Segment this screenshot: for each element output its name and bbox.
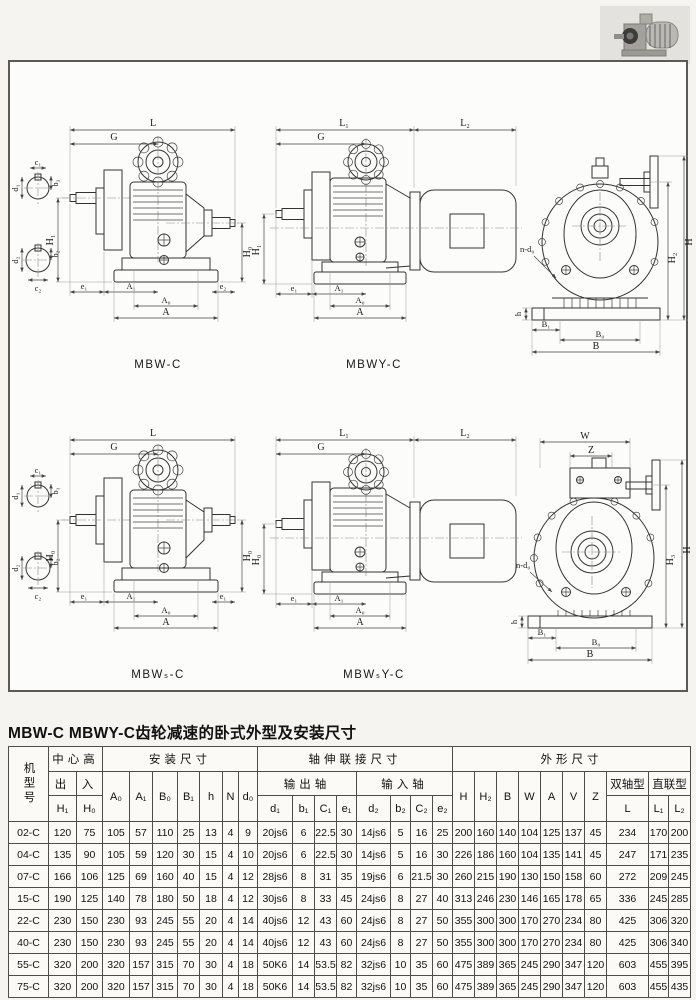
dim-label: G xyxy=(110,132,117,143)
dim-cell: 16 xyxy=(411,844,433,866)
table-row: 40-C23015023093245552041440js612436024js… xyxy=(9,932,691,954)
dim-cell: 18 xyxy=(239,976,258,998)
dim-cell: 32js6 xyxy=(357,976,391,998)
dim-cell: 125 xyxy=(77,888,103,910)
col-B0: B₀ xyxy=(153,772,178,822)
dim-cell: 8 xyxy=(391,932,411,954)
model-cell: 22-C xyxy=(9,910,49,932)
dim-cell: 80 xyxy=(585,932,607,954)
dim-cell: 65 xyxy=(585,888,607,910)
dim-cell: 104 xyxy=(519,822,541,844)
dim-cell: 16 xyxy=(411,822,433,844)
dim-cell: 50K6 xyxy=(258,976,293,998)
dim-cell: 455 xyxy=(649,954,669,976)
dim-cell: 30 xyxy=(200,954,223,976)
col-Z: Z xyxy=(585,772,607,822)
dim-cell: 14 xyxy=(239,932,258,954)
dim-label: c₁ xyxy=(35,465,42,475)
col-B: B xyxy=(497,772,519,822)
col-b1: b₁ xyxy=(293,796,315,822)
dim-cell: 320 xyxy=(103,954,130,976)
dim-cell: 33 xyxy=(315,888,337,910)
dim-cell: 170 xyxy=(649,822,669,844)
dim-cell: 18 xyxy=(200,888,223,910)
dim-cell: 60 xyxy=(433,954,453,976)
dim-cell: 135 xyxy=(49,844,77,866)
dim-cell: 272 xyxy=(607,866,649,888)
dim-cell: 10 xyxy=(391,976,411,998)
dim-label: L₂ xyxy=(460,428,470,439)
dim-cell: 178 xyxy=(563,888,585,910)
dim-cell: 300 xyxy=(475,932,497,954)
col-H: H xyxy=(453,772,475,822)
dim-label: L xyxy=(150,428,156,439)
dim-cell: 475 xyxy=(453,954,475,976)
model-cell: 75-C xyxy=(9,976,49,998)
table-header: 机型号 中心高 安装尺寸 轴伸联接尺寸 外形尺寸 出 入 A₀ A₁ B₀ B₁… xyxy=(9,747,691,822)
dim-cell: 160 xyxy=(153,866,178,888)
dim-cell: 226 xyxy=(453,844,475,866)
dim-cell: 140 xyxy=(497,822,519,844)
dim-cell: 160 xyxy=(475,822,497,844)
dim-cell: 30 xyxy=(337,822,357,844)
dim-cell: 395 xyxy=(669,954,691,976)
dim-cell: 235 xyxy=(669,844,691,866)
dim-cell: 24js6 xyxy=(357,932,391,954)
dim-label: n-d₀ xyxy=(520,244,534,254)
dim-cell: 13 xyxy=(200,822,223,844)
dim-cell: 28js6 xyxy=(258,866,293,888)
dim-cell: 4 xyxy=(223,976,239,998)
dim-label: H₁ xyxy=(45,235,56,246)
dim-cell: 60 xyxy=(337,910,357,932)
dim-cell: 200 xyxy=(77,954,103,976)
dim-cell: 389 xyxy=(475,954,497,976)
reducer-motor-body xyxy=(270,138,522,284)
dim-cell: 137 xyxy=(563,822,585,844)
dim-cell: 27 xyxy=(411,910,433,932)
dim-cell: 4 xyxy=(223,954,239,976)
dim-label: L₁ xyxy=(339,118,349,129)
dim-cell: 355 xyxy=(453,932,475,954)
dim-cell: 30 xyxy=(200,976,223,998)
dim-cell: 35 xyxy=(411,954,433,976)
dim-cell: 4 xyxy=(223,866,239,888)
gear-motor-photo-art xyxy=(600,6,690,64)
table-body: 02-C120751055711025134920js6622.53014js6… xyxy=(9,822,691,998)
dim-cell: 180 xyxy=(153,888,178,910)
dim-cell: 234 xyxy=(563,910,585,932)
dim-cell: 234 xyxy=(607,822,649,844)
model-cell: 15-C xyxy=(9,888,49,910)
dim-cell: 603 xyxy=(607,976,649,998)
dim-label: H xyxy=(684,238,695,245)
dim-label: G xyxy=(110,442,117,453)
dim-label: H₁ xyxy=(251,245,262,256)
col-in: 入 xyxy=(77,772,103,796)
dim-cell: 365 xyxy=(497,954,519,976)
dim-label: e₁ xyxy=(220,591,227,601)
dim-cell: 425 xyxy=(607,910,649,932)
dim-cell: 120 xyxy=(585,976,607,998)
dim-cell: 15 xyxy=(200,866,223,888)
col-A: A xyxy=(541,772,563,822)
col-C1: C₁ xyxy=(315,796,337,822)
dim-label: A₀ xyxy=(161,295,170,305)
dim-cell: 120 xyxy=(49,822,77,844)
dim-cell: 22.5 xyxy=(315,844,337,866)
dim-cell: 75 xyxy=(77,822,103,844)
dim-cell: 245 xyxy=(669,866,691,888)
dim-cell: 6 xyxy=(391,866,411,888)
table-row: 15-C19012514078180501841230js68334524js6… xyxy=(9,888,691,910)
dim-cell: 190 xyxy=(49,888,77,910)
col-h: h xyxy=(200,772,223,822)
dim-label: B xyxy=(587,649,594,660)
dim-cell: 12 xyxy=(293,932,315,954)
dim-cell: 45 xyxy=(585,822,607,844)
dim-cell: 30js6 xyxy=(258,888,293,910)
dim-cell: 6 xyxy=(293,844,315,866)
col-N: N xyxy=(223,772,239,822)
dim-cell: 125 xyxy=(541,822,563,844)
dim-cell: 110 xyxy=(153,822,178,844)
dim-cell: 22.5 xyxy=(315,822,337,844)
dim-cell: 20js6 xyxy=(258,822,293,844)
col-C2: C₂ xyxy=(411,796,433,822)
dim-cell: 200 xyxy=(453,822,475,844)
dim-cell: 25 xyxy=(433,822,453,844)
col-d0: d₀ xyxy=(239,772,258,822)
dim-label: b₂ xyxy=(50,250,60,257)
dim-cell: 4 xyxy=(223,932,239,954)
model-cell: 55-C xyxy=(9,954,49,976)
dim-cell: 14 xyxy=(293,954,315,976)
dim-cell: 60 xyxy=(433,976,453,998)
dim-cell: 146 xyxy=(519,888,541,910)
group-output-shaft: 输出轴 xyxy=(258,772,357,796)
dim-label: d₁ xyxy=(10,184,20,191)
col-d1: d₁ xyxy=(258,796,293,822)
dimension-table: 机型号 中心高 安装尺寸 轴伸联接尺寸 外形尺寸 出 入 A₀ A₁ B₀ B₁… xyxy=(8,746,691,998)
dim-cell: 158 xyxy=(563,866,585,888)
dim-cell: 21.5 xyxy=(411,866,433,888)
dim-cell: 245 xyxy=(153,910,178,932)
dim-cell: 215 xyxy=(475,866,497,888)
dim-cell: 285 xyxy=(669,888,691,910)
dim-label: b₁ xyxy=(50,487,60,494)
dim-label: B₁ xyxy=(538,627,547,637)
dim-cell: 6 xyxy=(293,822,315,844)
dim-label: B₀ xyxy=(596,329,605,339)
dim-cell: 32js6 xyxy=(357,954,391,976)
group-center-height: 中心高 xyxy=(49,747,103,772)
dim-cell: 14 xyxy=(293,976,315,998)
table-row: 07-C16610612569160401541228js68313519js6… xyxy=(9,866,691,888)
dim-cell: 475 xyxy=(453,976,475,998)
dimension-lines: L G H₀ H₀ e₁ A₁ e₁ A₀ xyxy=(45,428,253,632)
dim-cell: 306 xyxy=(649,932,669,954)
dim-cell: 40js6 xyxy=(258,932,293,954)
dim-cell: 30 xyxy=(433,866,453,888)
dim-cell: 336 xyxy=(607,888,649,910)
col-L2: L₂ xyxy=(669,796,691,822)
dim-cell: 300 xyxy=(475,910,497,932)
housing-end-view xyxy=(528,458,660,628)
dim-cell: 40 xyxy=(178,866,200,888)
dim-label: H₂ xyxy=(667,253,678,264)
dim-cell: 435 xyxy=(669,976,691,998)
col-H1: H₁ xyxy=(49,796,77,822)
dim-cell: 315 xyxy=(153,976,178,998)
input-shaft-section-detail: b₂ d₂ c₂ xyxy=(10,243,60,293)
dim-cell: 166 xyxy=(49,866,77,888)
dim-cell: 234 xyxy=(563,932,585,954)
dim-label: e₁ xyxy=(81,281,88,291)
dim-cell: 120 xyxy=(153,844,178,866)
dimension-lines: H H₂ n-d₀ h B₁ B₀ B xyxy=(513,156,695,356)
col-H0: H₀ xyxy=(77,796,103,822)
col-V: V xyxy=(563,772,585,822)
group-outline: 外形尺寸 xyxy=(453,747,691,772)
dim-cell: 104 xyxy=(519,844,541,866)
drawing-caption: MBWₛ-C xyxy=(131,669,185,681)
dim-cell: 389 xyxy=(475,976,497,998)
dim-cell: 270 xyxy=(541,932,563,954)
dim-label: H₀ xyxy=(45,550,56,561)
group-input-shaft: 输入轴 xyxy=(357,772,453,796)
dim-cell: 8 xyxy=(293,866,315,888)
dim-label: c₂ xyxy=(35,591,42,601)
dim-label: G xyxy=(317,132,324,143)
dim-label: A₁ xyxy=(334,593,343,603)
dim-label: A₁ xyxy=(334,283,343,293)
dim-cell: 25 xyxy=(178,822,200,844)
dim-label: B₀ xyxy=(592,637,601,647)
dim-cell: 120 xyxy=(585,954,607,976)
col-L: L xyxy=(607,796,649,822)
dim-label: L₁ xyxy=(339,428,349,439)
dim-cell: 20 xyxy=(200,932,223,954)
dim-cell: 306 xyxy=(649,910,669,932)
dim-cell: 4 xyxy=(223,844,239,866)
output-shaft-section-detail: c₁ b₁ d₁ xyxy=(10,465,60,512)
dim-cell: 8 xyxy=(391,910,411,932)
dim-cell: 5 xyxy=(391,844,411,866)
dim-cell: 4 xyxy=(223,888,239,910)
col-e1: e₁ xyxy=(337,796,357,822)
dim-cell: 125 xyxy=(103,866,130,888)
group-direct-coupled: 直联型 xyxy=(649,772,691,796)
group-double-shaft: 双轴型 xyxy=(607,772,649,796)
dim-cell: 170 xyxy=(519,932,541,954)
dim-cell: 247 xyxy=(607,844,649,866)
dim-label: A xyxy=(356,617,364,628)
dim-cell: 106 xyxy=(77,866,103,888)
dim-label: n-d₀ xyxy=(516,560,530,570)
dim-cell: 260 xyxy=(453,866,475,888)
model-cell: 40-C xyxy=(9,932,49,954)
dim-cell: 50 xyxy=(433,932,453,954)
dim-cell: 60 xyxy=(337,932,357,954)
dim-cell: 12 xyxy=(293,910,315,932)
dim-label: A₀ xyxy=(355,605,364,615)
dim-label: A₀ xyxy=(161,605,170,615)
model-cell: 02-C xyxy=(9,822,49,844)
dim-cell: 135 xyxy=(541,844,563,866)
dim-label: e₁ xyxy=(291,593,298,603)
dim-label: H₃ xyxy=(665,555,676,566)
reducer-body xyxy=(62,136,242,282)
dim-cell: 230 xyxy=(497,888,519,910)
dim-cell: 160 xyxy=(497,844,519,866)
dim-label: G xyxy=(317,442,324,453)
dim-cell: 14js6 xyxy=(357,844,391,866)
dim-cell: 365 xyxy=(497,976,519,998)
model-cell: 04-C xyxy=(9,844,49,866)
dim-cell: 60 xyxy=(585,866,607,888)
dim-cell: 18 xyxy=(239,954,258,976)
dim-cell: 53.5 xyxy=(315,976,337,998)
dim-cell: 320 xyxy=(49,954,77,976)
dim-cell: 347 xyxy=(563,976,585,998)
dim-label: e₁ xyxy=(291,283,298,293)
dim-cell: 4 xyxy=(223,822,239,844)
output-shaft-section-detail: c₁ b₁ d₁ xyxy=(10,157,60,204)
dim-label: A xyxy=(162,617,170,628)
dim-label: A xyxy=(162,307,170,318)
dim-cell: 59 xyxy=(130,844,153,866)
dim-cell: 30 xyxy=(178,844,200,866)
dim-cell: 35 xyxy=(411,976,433,998)
dim-cell: 320 xyxy=(103,976,130,998)
dim-label: d₂ xyxy=(10,256,20,263)
dim-cell: 245 xyxy=(519,976,541,998)
dim-cell: 27 xyxy=(411,932,433,954)
table-row: 04-C1359010559120301541020js6622.53014js… xyxy=(9,844,691,866)
dim-cell: 140 xyxy=(103,888,130,910)
dim-label: d₁ xyxy=(10,492,20,499)
col-B1: B₁ xyxy=(178,772,200,822)
dim-cell: 105 xyxy=(103,822,130,844)
dim-cell: 290 xyxy=(541,954,563,976)
reducer-motor-body xyxy=(270,448,522,594)
dim-cell: 245 xyxy=(519,954,541,976)
dim-label: e₂ xyxy=(220,281,227,291)
dim-cell: 43 xyxy=(315,910,337,932)
mbwy-c-drawing: L₁ L₂ G H₁ e₁ A₁ A₀ A MBWY-C xyxy=(254,110,526,383)
dim-cell: 300 xyxy=(497,932,519,954)
dim-cell: 246 xyxy=(475,888,497,910)
dim-cell: 130 xyxy=(519,866,541,888)
dim-cell: 157 xyxy=(130,954,153,976)
dim-cell: 200 xyxy=(77,976,103,998)
dim-cell: 425 xyxy=(607,932,649,954)
dim-cell: 27 xyxy=(411,888,433,910)
drawing-caption: MBWₛY-C xyxy=(343,669,405,681)
col-L1: L₁ xyxy=(649,796,669,822)
table-row: 55-C320200320157315703041850K61453.58232… xyxy=(9,954,691,976)
dim-cell: 14js6 xyxy=(357,822,391,844)
dim-cell: 603 xyxy=(607,954,649,976)
dim-cell: 40 xyxy=(433,888,453,910)
dim-label: Z xyxy=(588,445,594,456)
dim-cell: 186 xyxy=(475,844,497,866)
dim-label: A₀ xyxy=(355,295,364,305)
dim-cell: 170 xyxy=(519,910,541,932)
dim-cell: 340 xyxy=(669,932,691,954)
dim-cell: 245 xyxy=(649,888,669,910)
dim-cell: 50 xyxy=(433,910,453,932)
col-A0: A₀ xyxy=(103,772,130,822)
dim-cell: 15 xyxy=(200,844,223,866)
dim-cell: 320 xyxy=(669,910,691,932)
dim-cell: 270 xyxy=(541,910,563,932)
dim-label: c₁ xyxy=(35,157,42,167)
col-model: 机型号 xyxy=(9,747,49,822)
group-mounting: 安装尺寸 xyxy=(103,747,258,772)
dim-cell: 347 xyxy=(563,954,585,976)
reducer-body xyxy=(62,444,242,592)
dim-cell: 20 xyxy=(200,910,223,932)
dim-cell: 45 xyxy=(337,888,357,910)
dim-cell: 150 xyxy=(541,866,563,888)
dim-label: L xyxy=(150,118,156,129)
dim-cell: 53.5 xyxy=(315,954,337,976)
dim-cell: 5 xyxy=(391,822,411,844)
dim-cell: 40js6 xyxy=(258,910,293,932)
dim-cell: 50K6 xyxy=(258,954,293,976)
dim-cell: 24js6 xyxy=(357,888,391,910)
dim-cell: 82 xyxy=(337,954,357,976)
dim-label: H₀ xyxy=(251,554,262,565)
dim-cell: 8 xyxy=(391,888,411,910)
dim-cell: 80 xyxy=(585,910,607,932)
dim-cell: 35 xyxy=(337,866,357,888)
mbwsy-c-drawing: L₁ L₂ G H₀ e₁ A₁ A₀ A MBWₛY-C xyxy=(254,420,526,693)
dim-label: B xyxy=(593,341,600,352)
dim-cell: 93 xyxy=(130,932,153,954)
col-H2: H₂ xyxy=(475,772,497,822)
dim-cell: 4 xyxy=(223,910,239,932)
dim-cell: 290 xyxy=(541,976,563,998)
page-title: MBW-C MBWY-C齿轮减速的卧式外型及安装尺寸 xyxy=(8,721,356,743)
dim-label: H xyxy=(682,546,693,553)
end-view-bottom-drawing: W Z H H₃ n-d₀ h B₁ B₀ xyxy=(512,430,696,693)
dim-label: b₁ xyxy=(50,179,60,186)
dim-label: e₁ xyxy=(81,591,88,601)
col-W: W xyxy=(519,772,541,822)
catalog-page: { "title": "MBW-C MBWY-C齿轮减速的卧式外型及安装尺寸",… xyxy=(0,0,696,1000)
dim-cell: 20js6 xyxy=(258,844,293,866)
housing-end-view xyxy=(532,156,660,320)
dim-cell: 230 xyxy=(103,932,130,954)
dim-cell: 355 xyxy=(453,910,475,932)
dim-cell: 245 xyxy=(153,932,178,954)
dim-cell: 200 xyxy=(669,822,691,844)
mbws-c-drawing: c₁ b₁ d₁ b₂ d₂ c₂ xyxy=(16,420,252,693)
dim-cell: 190 xyxy=(497,866,519,888)
dim-label: B₁ xyxy=(542,319,551,329)
col-A1: A₁ xyxy=(130,772,153,822)
table-row: 75-C320200320157315703041850K61453.58232… xyxy=(9,976,691,998)
dimension-lines: W Z H H₃ n-d₀ h B₁ B₀ xyxy=(509,431,693,664)
col-e2: e₂ xyxy=(433,796,453,822)
dim-cell: 30 xyxy=(433,844,453,866)
model-cell: 07-C xyxy=(9,866,49,888)
col-b2: b₂ xyxy=(391,796,411,822)
col-out: 出 xyxy=(49,772,77,796)
